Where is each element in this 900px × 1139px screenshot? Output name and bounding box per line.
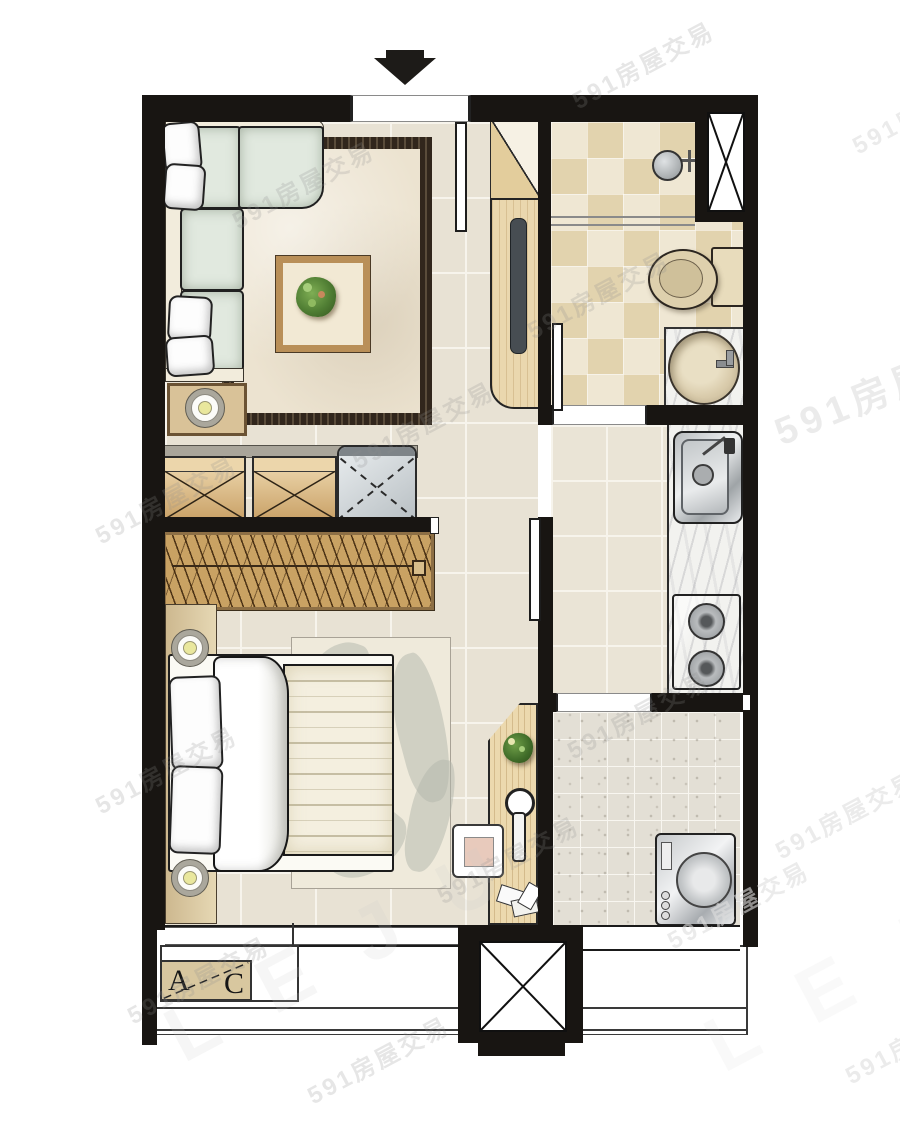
sofa-cushion-3 <box>180 208 244 291</box>
ac-label-a: A <box>168 966 190 996</box>
watermark-text: 591房屋交易 <box>765 309 900 456</box>
tv-icon <box>510 218 527 354</box>
platform-line-right-3 <box>583 1034 748 1035</box>
toilet-bowl-icon <box>648 249 718 310</box>
stove-burner-1-icon <box>688 603 725 640</box>
laundry-door-opening <box>556 693 652 712</box>
sofa-cushion-2 <box>238 126 324 209</box>
kitchen-stove <box>672 594 741 690</box>
shower-bracket <box>688 150 691 172</box>
laundry-window <box>583 925 740 951</box>
bed-pillow-1 <box>168 675 223 771</box>
bath-faucet-knob <box>726 350 734 366</box>
platform-line-left-3 <box>157 1034 458 1035</box>
sofa-pillow-2 <box>162 163 206 212</box>
watermark-text: 591房屋交易 <box>845 56 900 161</box>
washing-machine <box>655 833 736 926</box>
bath-basin-icon <box>668 331 740 405</box>
nightstand-lamp-top-icon <box>171 629 209 667</box>
platform-line-left-2 <box>157 1029 458 1031</box>
elevator-x <box>479 941 567 1032</box>
wall-right <box>743 95 758 947</box>
bed-duvet <box>213 656 289 872</box>
wall-left <box>142 95 165 930</box>
wall-bath-left <box>538 122 551 405</box>
wall-top-left <box>142 95 350 122</box>
wardrobe-rail-end <box>412 560 426 576</box>
platform-line-right-1 <box>583 1007 748 1009</box>
watermark-text: 591房屋交易 <box>838 986 900 1091</box>
platform-line-right-2 <box>583 1029 748 1031</box>
entrance-door-opening <box>350 95 471 122</box>
bed-blanket <box>283 664 394 856</box>
shower-head-icon <box>652 150 683 181</box>
wall-left-lower <box>142 930 157 1045</box>
refrigerator <box>337 445 417 521</box>
entrance-arrow-head <box>374 58 436 85</box>
stove-burner-2-icon <box>688 650 725 687</box>
washer-detergent-slot <box>661 842 672 870</box>
elevator-shaft-step <box>478 1043 565 1056</box>
wall-right-notch <box>743 695 750 710</box>
sink-drain-icon <box>692 464 714 486</box>
desk-chair <box>452 824 504 878</box>
duct-shaft-x <box>707 112 745 212</box>
floor-plan-canvas: A C 591房屋交易 591房屋交易 591房屋交易 591房屋交易 591房… <box>0 0 900 1139</box>
bathroom-door-leaf <box>552 323 563 411</box>
wardrobe <box>163 532 434 610</box>
bathroom-door-opening <box>552 405 647 425</box>
wall-end-cap <box>430 517 439 534</box>
nightstand-lamp-bottom-icon <box>171 859 209 897</box>
entrance-door-leaf <box>455 122 467 232</box>
kitchen-sink <box>673 431 743 524</box>
entry-cabinet-top <box>490 118 542 200</box>
coffee-table-plant-icon <box>296 277 336 317</box>
desk-lamp-stem <box>512 812 526 862</box>
washer-drum-icon <box>676 852 732 908</box>
ac-label-c: C <box>224 969 244 999</box>
side-table-lamp-icon <box>185 388 225 428</box>
shower-partition-line <box>551 216 695 226</box>
wall-bedroom-top <box>165 517 430 532</box>
window-mullion <box>292 923 294 947</box>
wardrobe-rail <box>172 565 418 567</box>
desk-plant-icon <box>503 733 533 763</box>
bedroom-window <box>165 925 458 947</box>
bed-pillow-2 <box>168 765 223 855</box>
bedroom-door-leaf <box>529 518 541 621</box>
sofa-pillow-4 <box>165 334 216 377</box>
ac-unit: A C <box>160 960 252 1001</box>
platform-line-right-vert <box>746 947 748 1035</box>
platform-line-left-1 <box>157 1007 458 1009</box>
dresser-2 <box>252 456 337 521</box>
watermark-text: 591房屋交易 <box>300 1006 455 1111</box>
dresser-1 <box>163 456 246 521</box>
watermark-text: 591房屋交易 <box>768 761 900 866</box>
